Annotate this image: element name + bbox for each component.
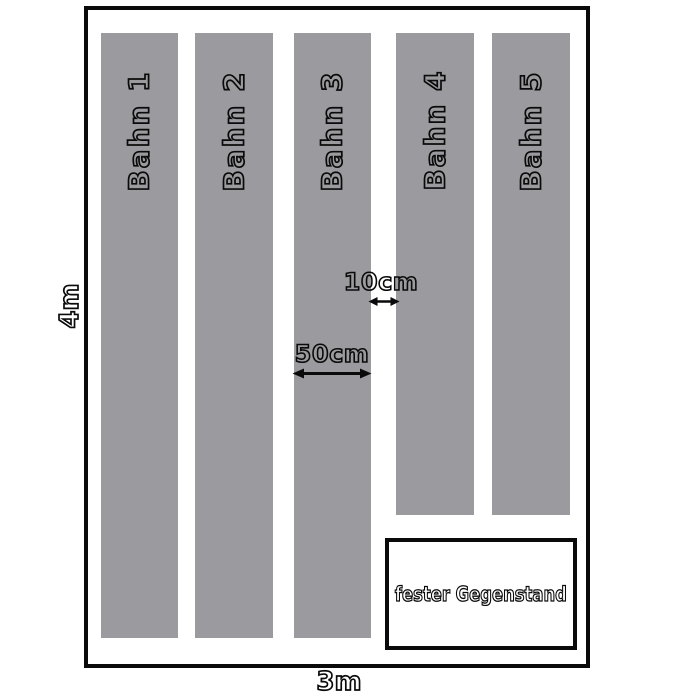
lane-label-text: Bahn 2 <box>218 70 251 191</box>
gap-dimension-label: 10cm <box>344 268 419 296</box>
lane-width-dimension-label: 50cm <box>295 340 370 368</box>
lane-label-text: Bahn 1 <box>123 70 156 191</box>
room-width-label: 3m <box>316 667 361 697</box>
lane-label-text: Bahn 4 <box>419 69 452 190</box>
fixed-object-box: fester Gegenstand <box>385 538 577 650</box>
double-arrow-icon <box>368 295 400 308</box>
lane-label-text: Bahn 5 <box>515 70 548 191</box>
double-arrow-icon <box>292 366 372 381</box>
diagram-canvas: Bahn 1 Bahn 2 Bahn 3 Bahn 4 Bahn 5 4m 3m… <box>0 0 700 700</box>
room-height-label: 4m <box>55 283 85 328</box>
lane-label-text: Bahn 3 <box>316 70 349 191</box>
fixed-object-label: fester Gegenstand <box>395 582 567 606</box>
